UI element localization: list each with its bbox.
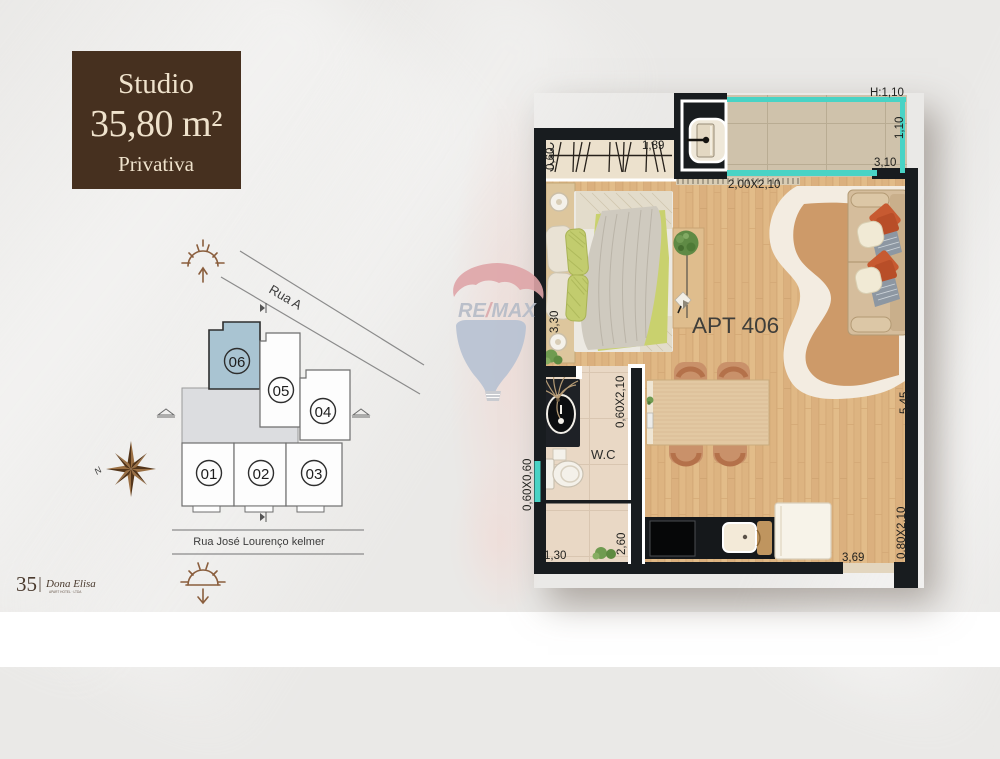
- svg-text:0,60X2,10: 0,60X2,10: [615, 376, 627, 428]
- svg-text:3,30: 3,30: [549, 311, 561, 333]
- svg-text:APT 406: APT 406: [692, 313, 779, 338]
- svg-text:06: 06: [229, 354, 246, 371]
- svg-text:H:1,10: H:1,10: [870, 87, 904, 99]
- svg-text:W.C: W.C: [591, 447, 616, 462]
- svg-text:1,89: 1,89: [642, 140, 664, 152]
- svg-text:3,69: 3,69: [842, 552, 864, 564]
- svg-text:Rua José Lourenço kelmer: Rua José Lourenço kelmer: [193, 536, 325, 548]
- svg-text:5,45: 5,45: [899, 392, 911, 414]
- svg-text:Rua A: Rua A: [266, 282, 304, 313]
- svg-text:Studio: Studio: [118, 68, 194, 100]
- svg-text:APART HOTEL · LTDA: APART HOTEL · LTDA: [49, 590, 82, 594]
- svg-text:0,60: 0,60: [545, 148, 557, 170]
- svg-text:35: 35: [16, 572, 37, 596]
- svg-text:0,60X0,60: 0,60X0,60: [522, 459, 534, 511]
- svg-text:RE/MAX: RE/MAX: [458, 300, 537, 322]
- svg-text:1,10: 1,10: [894, 117, 906, 139]
- svg-text:2,00X2,10: 2,00X2,10: [728, 179, 780, 191]
- svg-text:Privativa: Privativa: [118, 152, 194, 176]
- svg-text:0,80X2,10: 0,80X2,10: [896, 507, 908, 559]
- svg-text:N: N: [92, 464, 103, 476]
- svg-text:2,60: 2,60: [616, 533, 628, 555]
- svg-text:05: 05: [273, 383, 290, 400]
- svg-text:Dona Elisa: Dona Elisa: [45, 578, 96, 590]
- svg-text:3,10: 3,10: [874, 157, 896, 169]
- svg-text:02: 02: [253, 466, 270, 483]
- svg-text:35,80 m²: 35,80 m²: [90, 103, 222, 145]
- svg-text:03: 03: [306, 466, 323, 483]
- svg-text:04: 04: [315, 404, 332, 421]
- svg-text:01: 01: [201, 466, 218, 483]
- svg-text:1,30: 1,30: [544, 550, 566, 562]
